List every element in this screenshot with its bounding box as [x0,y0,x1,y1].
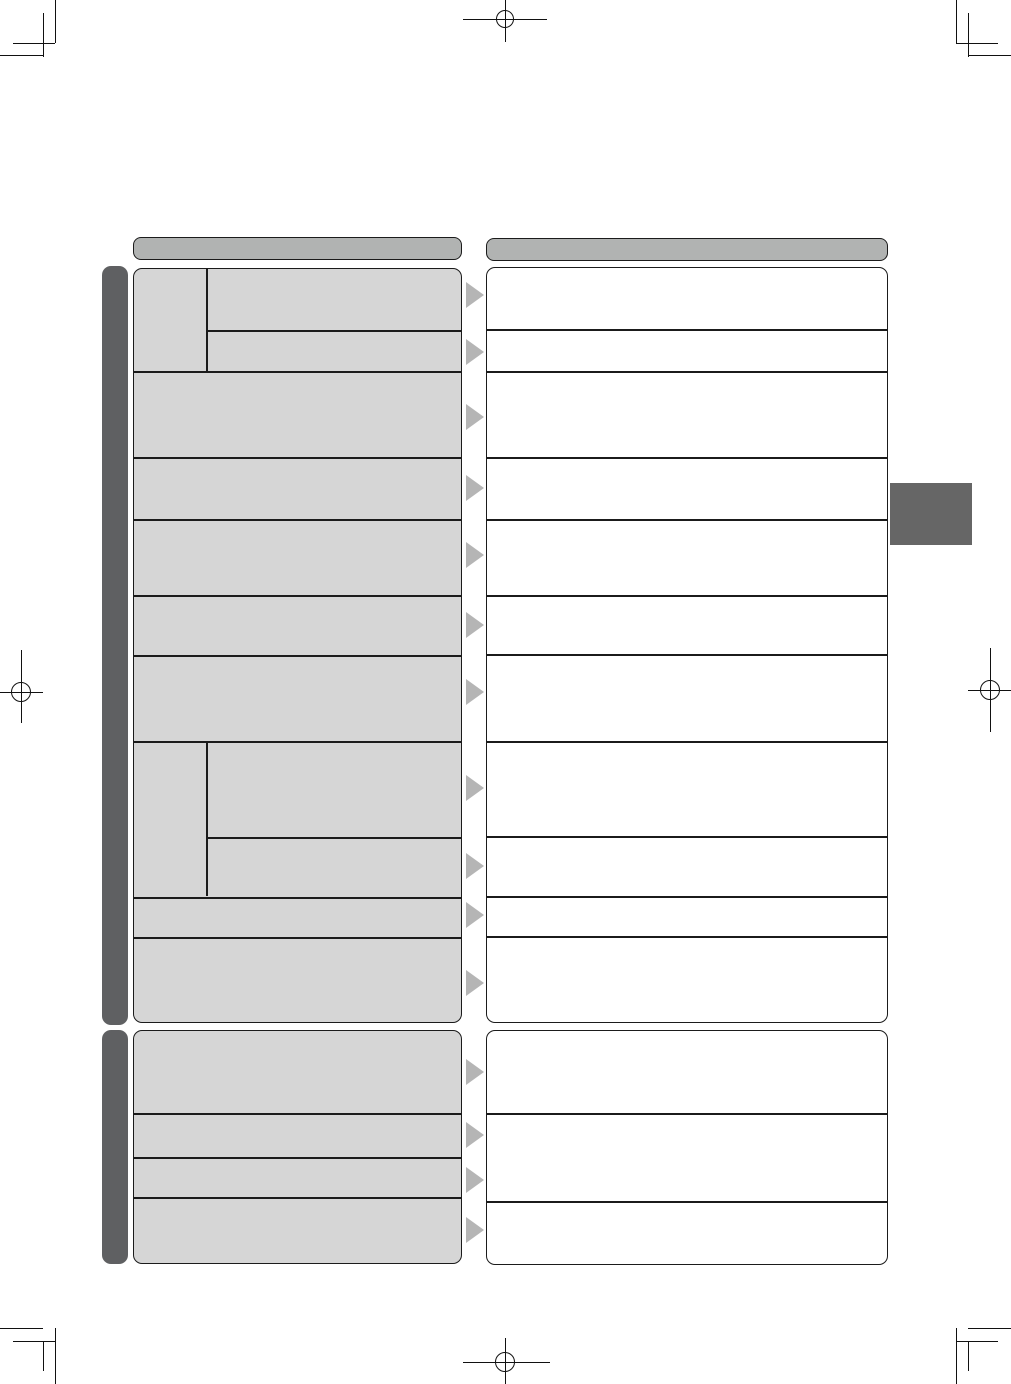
subcolumn-divider [206,741,208,896]
row-divider [487,1201,887,1203]
arrow-right-icon [466,339,484,365]
manual-page [0,0,1011,1384]
row-divider [134,595,461,597]
crop-mark-line [968,1328,1011,1329]
registration-mark-circle [495,1352,515,1372]
crop-mark-line [956,1328,957,1384]
crop-mark-line [968,1341,969,1371]
symptom-column-header-bar [133,237,462,260]
arrow-right-icon [466,902,484,928]
remedy-column-header-bar [486,238,888,261]
section-bar-2 [102,1030,128,1264]
row-divider [487,896,887,898]
crop-mark-line [968,13,969,57]
row-divider [487,654,887,656]
crop-mark-line [0,1328,43,1329]
arrow-right-icon [466,1217,484,1243]
row-divider [134,519,461,521]
row-divider [487,371,887,373]
row-divider [487,329,887,331]
crop-mark-line [0,55,43,56]
row-divider [134,741,461,743]
chapter-tab [890,483,972,545]
arrow-right-icon [466,1167,484,1193]
arrow-right-icon [466,282,484,308]
crop-mark-line [956,0,957,43]
crop-mark-line [55,1328,56,1384]
row-divider [134,371,461,373]
registration-mark-circle [980,680,1000,700]
row-divider [134,897,461,899]
row-divider [206,837,461,839]
crop-mark-line [43,13,44,57]
arrow-right-icon [466,404,484,430]
row-divider [487,936,887,938]
crop-mark-line [968,55,1011,56]
registration-mark-circle [11,682,31,702]
row-divider [487,595,887,597]
registration-mark-circle [496,10,514,28]
row-divider [134,457,461,459]
arrow-right-icon [466,1059,484,1085]
crop-mark-line [43,1341,44,1371]
arrow-right-icon [466,475,484,501]
arrow-right-icon [466,1122,484,1148]
subcolumn-divider [206,269,208,373]
arrow-right-icon [466,853,484,879]
symptom-table-section-2 [133,1030,462,1264]
row-divider [206,330,461,332]
row-divider [134,1197,461,1199]
row-divider [134,937,461,939]
row-divider [487,519,887,521]
section-bar-1 [102,266,128,1025]
arrow-right-icon [466,775,484,801]
row-divider [487,741,887,743]
remedy-table-section-2 [486,1030,888,1265]
crop-mark-line [956,43,998,44]
crop-mark-line [13,1341,55,1342]
symptom-table-section-1 [133,268,462,1023]
crop-mark-line [956,1341,998,1342]
row-divider [134,1113,461,1115]
arrow-right-icon [466,679,484,705]
arrow-right-icon [466,612,484,638]
row-divider [134,655,461,657]
crop-mark-line [55,0,56,43]
row-divider [487,457,887,459]
remedy-table-section-1 [486,267,888,1023]
row-divider [487,1113,887,1115]
row-divider [134,1157,461,1159]
arrow-right-icon [466,542,484,568]
arrow-right-icon [466,970,484,996]
crop-mark-line [13,43,55,44]
row-divider [487,836,887,838]
